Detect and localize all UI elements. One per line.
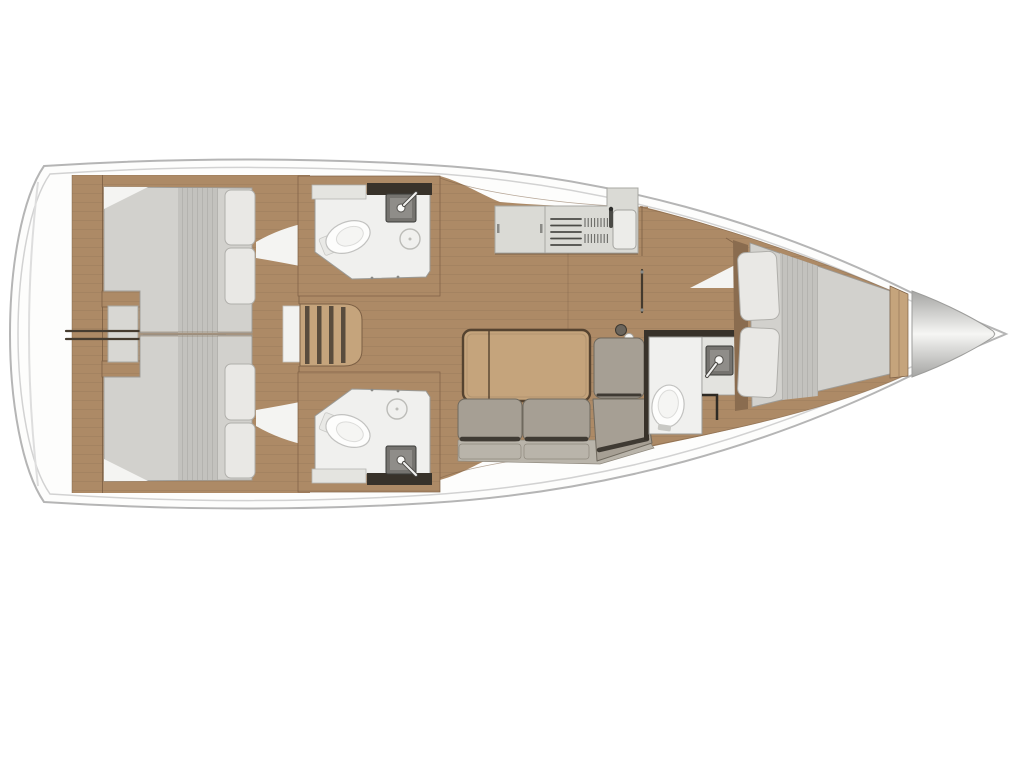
step-edge — [305, 306, 310, 364]
saloon-table — [463, 330, 590, 401]
head-cabinet — [312, 469, 366, 483]
pillow — [225, 364, 255, 420]
step-edge — [329, 306, 334, 364]
door-hinge — [640, 270, 643, 273]
head-wall — [367, 183, 432, 195]
yacht-deck-plan — [0, 0, 1024, 768]
berth-quilt-band — [178, 188, 218, 333]
sofa-cushion-vertical — [594, 338, 644, 398]
head-wall-left — [644, 330, 649, 440]
berth-quilt-band — [178, 335, 218, 480]
head-cabinet — [312, 185, 366, 199]
engine-shelf-upper — [102, 291, 140, 307]
floor-plan-canvas — [0, 0, 1024, 768]
locker-handle — [497, 224, 500, 233]
engine-access-hatch — [108, 306, 138, 362]
companionway-landing — [283, 306, 300, 362]
head-wall-top — [644, 330, 738, 337]
sofa-cushion — [523, 399, 590, 441]
door-hinge — [397, 390, 400, 393]
door-hinge — [371, 389, 374, 392]
cushion-front — [459, 444, 521, 459]
shower-drain-center — [409, 238, 412, 241]
berth-quilt-band — [780, 253, 818, 400]
pillow — [737, 327, 780, 398]
mast-post — [616, 325, 627, 336]
pillow — [225, 248, 255, 304]
head-starboard — [298, 372, 440, 492]
door-hinge — [640, 308, 643, 311]
step-edge — [317, 306, 322, 364]
cushion-front — [524, 444, 589, 459]
step-edge — [341, 307, 346, 363]
shower-drain-center — [396, 408, 399, 411]
pillow — [225, 423, 255, 478]
anchor-locker — [912, 291, 995, 377]
pillow — [225, 190, 255, 245]
head-port — [298, 176, 440, 296]
door-hinge — [397, 276, 400, 279]
galley-faucet-head — [609, 207, 613, 211]
saloon — [458, 325, 654, 465]
head-wall — [367, 473, 432, 485]
door-hinge — [371, 277, 374, 280]
sofa-cushion — [458, 399, 522, 441]
pillow — [737, 251, 780, 321]
locker-handle — [540, 224, 543, 233]
bow — [912, 291, 995, 377]
engine-shelf-lower — [102, 361, 140, 377]
galley-sink — [613, 210, 636, 249]
